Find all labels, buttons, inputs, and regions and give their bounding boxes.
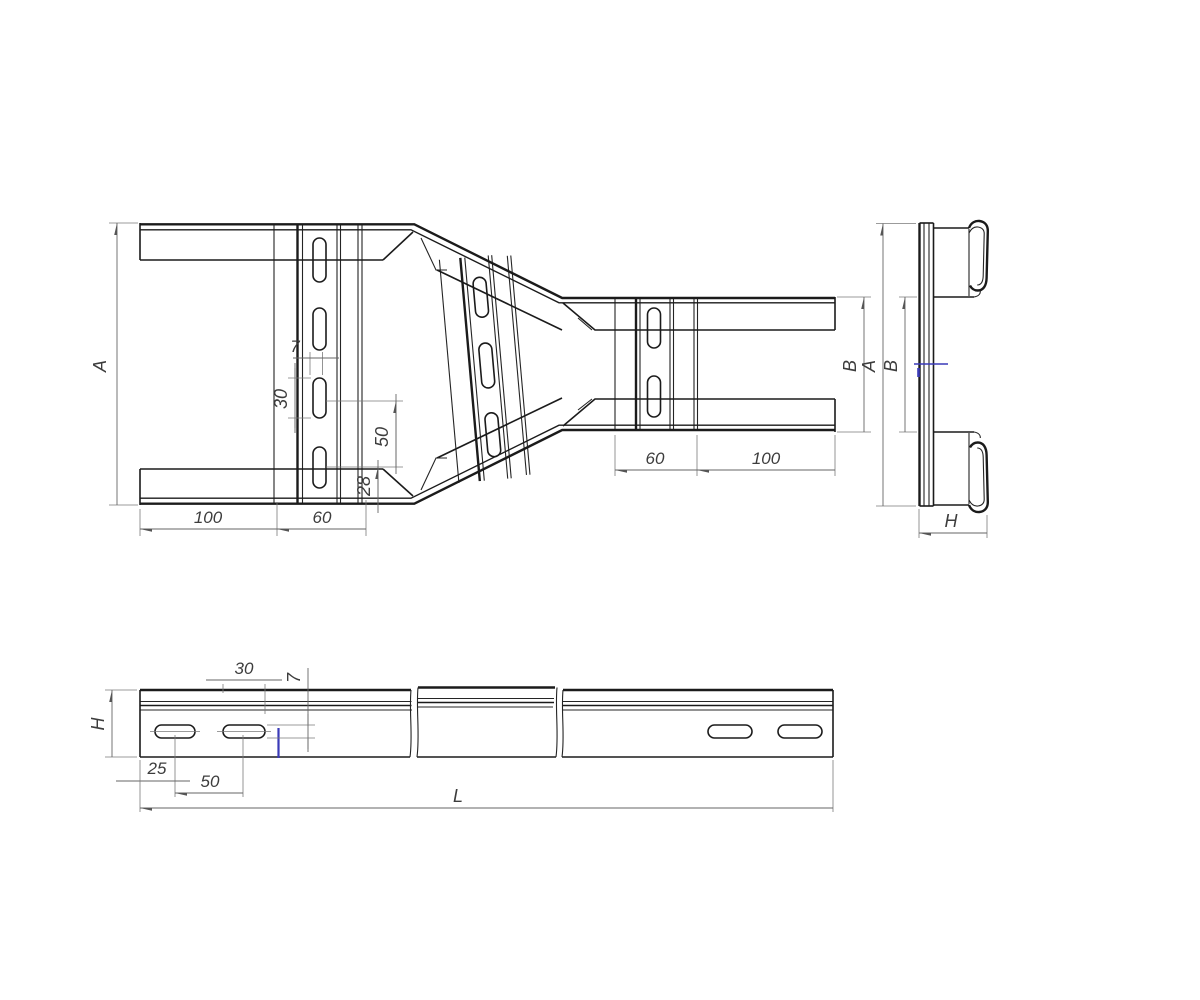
end-view: A B H [859, 221, 988, 538]
dim-label-plan-60-right: 60 [646, 449, 665, 468]
plan-view: A 100 60 7 30 [90, 223, 871, 536]
side-view-profile [140, 688, 833, 759]
end-view-profile [914, 221, 988, 512]
plan-wide-rung [274, 224, 362, 504]
rung-slot [313, 308, 326, 350]
dim-label-plan-60-left: 60 [313, 508, 332, 527]
dim-label-plan-50: 50 [372, 427, 392, 447]
side-view: H 30 7 25 50 [88, 659, 833, 812]
rung-slot [313, 447, 326, 488]
dim-label-side-25: 25 [147, 759, 167, 778]
dim-label-side-l: L [453, 786, 463, 806]
plan-taper-rung [439, 254, 530, 483]
technical-drawing: A 100 60 7 30 [0, 0, 1200, 1000]
dim-label-plan-100-right: 100 [752, 449, 781, 468]
rung-slot [648, 308, 661, 348]
dim-label-plan-30: 30 [271, 389, 291, 409]
dim-label-plan-b: B [840, 360, 860, 372]
rung-slot [648, 376, 661, 417]
plan-dimensions: A 100 60 7 30 [90, 223, 871, 536]
plan-narrow-rung [615, 298, 698, 431]
dim-label-plan-a: A [90, 360, 110, 373]
drawing-page: A 100 60 7 30 [0, 0, 1200, 1000]
dim-label-plan-100-left: 100 [194, 508, 223, 527]
side-slot [708, 725, 752, 738]
dim-label-side-h: H [88, 717, 108, 731]
dim-label-side-30: 30 [235, 659, 254, 678]
dim-label-side-7: 7 [284, 672, 304, 683]
dim-label-side-50: 50 [201, 772, 220, 791]
rung-slot [478, 343, 495, 389]
dim-label-end-h: H [945, 511, 959, 531]
rung-slot [313, 378, 326, 418]
side-slot [778, 725, 822, 738]
dim-label-plan-7: 7 [290, 337, 300, 356]
dim-label-end-b: B [881, 360, 901, 372]
dim-label-plan-28: 28 [354, 476, 374, 497]
dim-label-end-a: A [859, 360, 879, 373]
end-view-dimensions: A B H [859, 224, 987, 539]
rung-slot [473, 277, 489, 318]
